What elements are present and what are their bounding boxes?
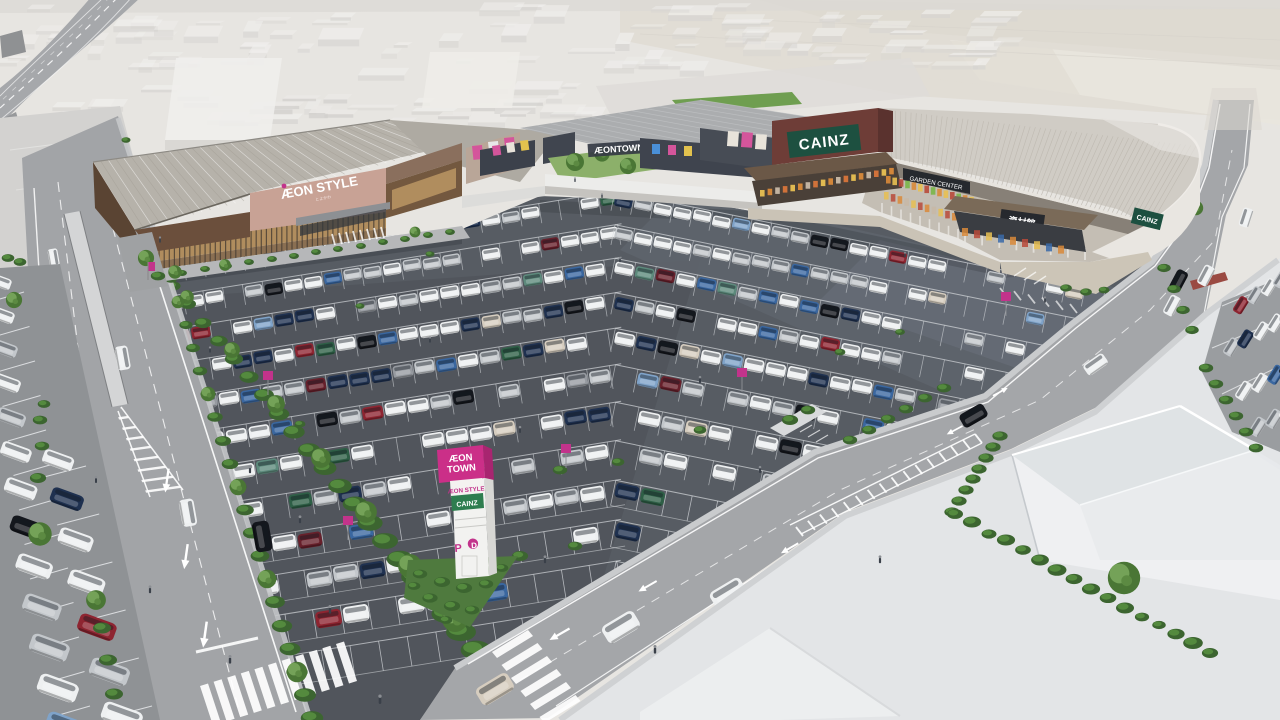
svg-text:D: D	[471, 541, 478, 550]
svg-text:P: P	[454, 542, 462, 554]
